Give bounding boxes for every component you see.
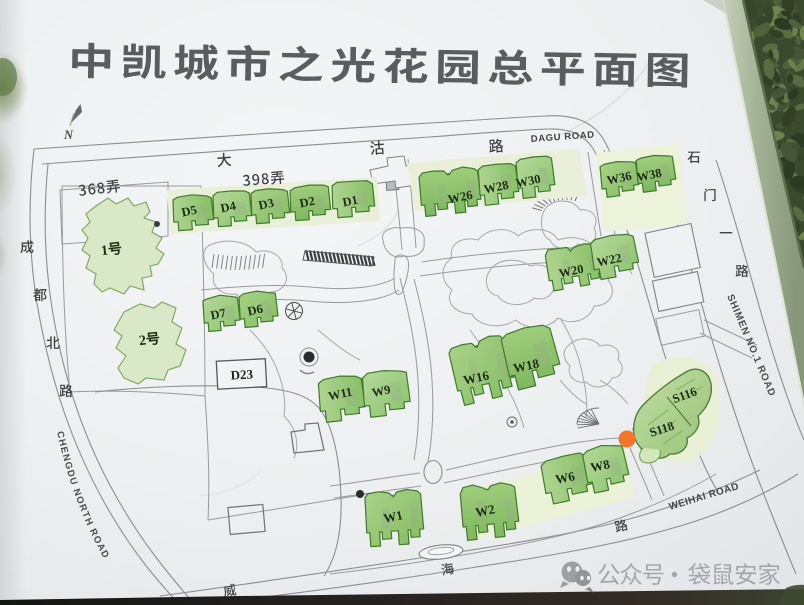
svg-text:D23: D23 [230, 366, 254, 382]
svg-text:2号: 2号 [138, 331, 161, 349]
svg-text:N: N [63, 128, 74, 142]
svg-text:1号: 1号 [100, 241, 123, 259]
